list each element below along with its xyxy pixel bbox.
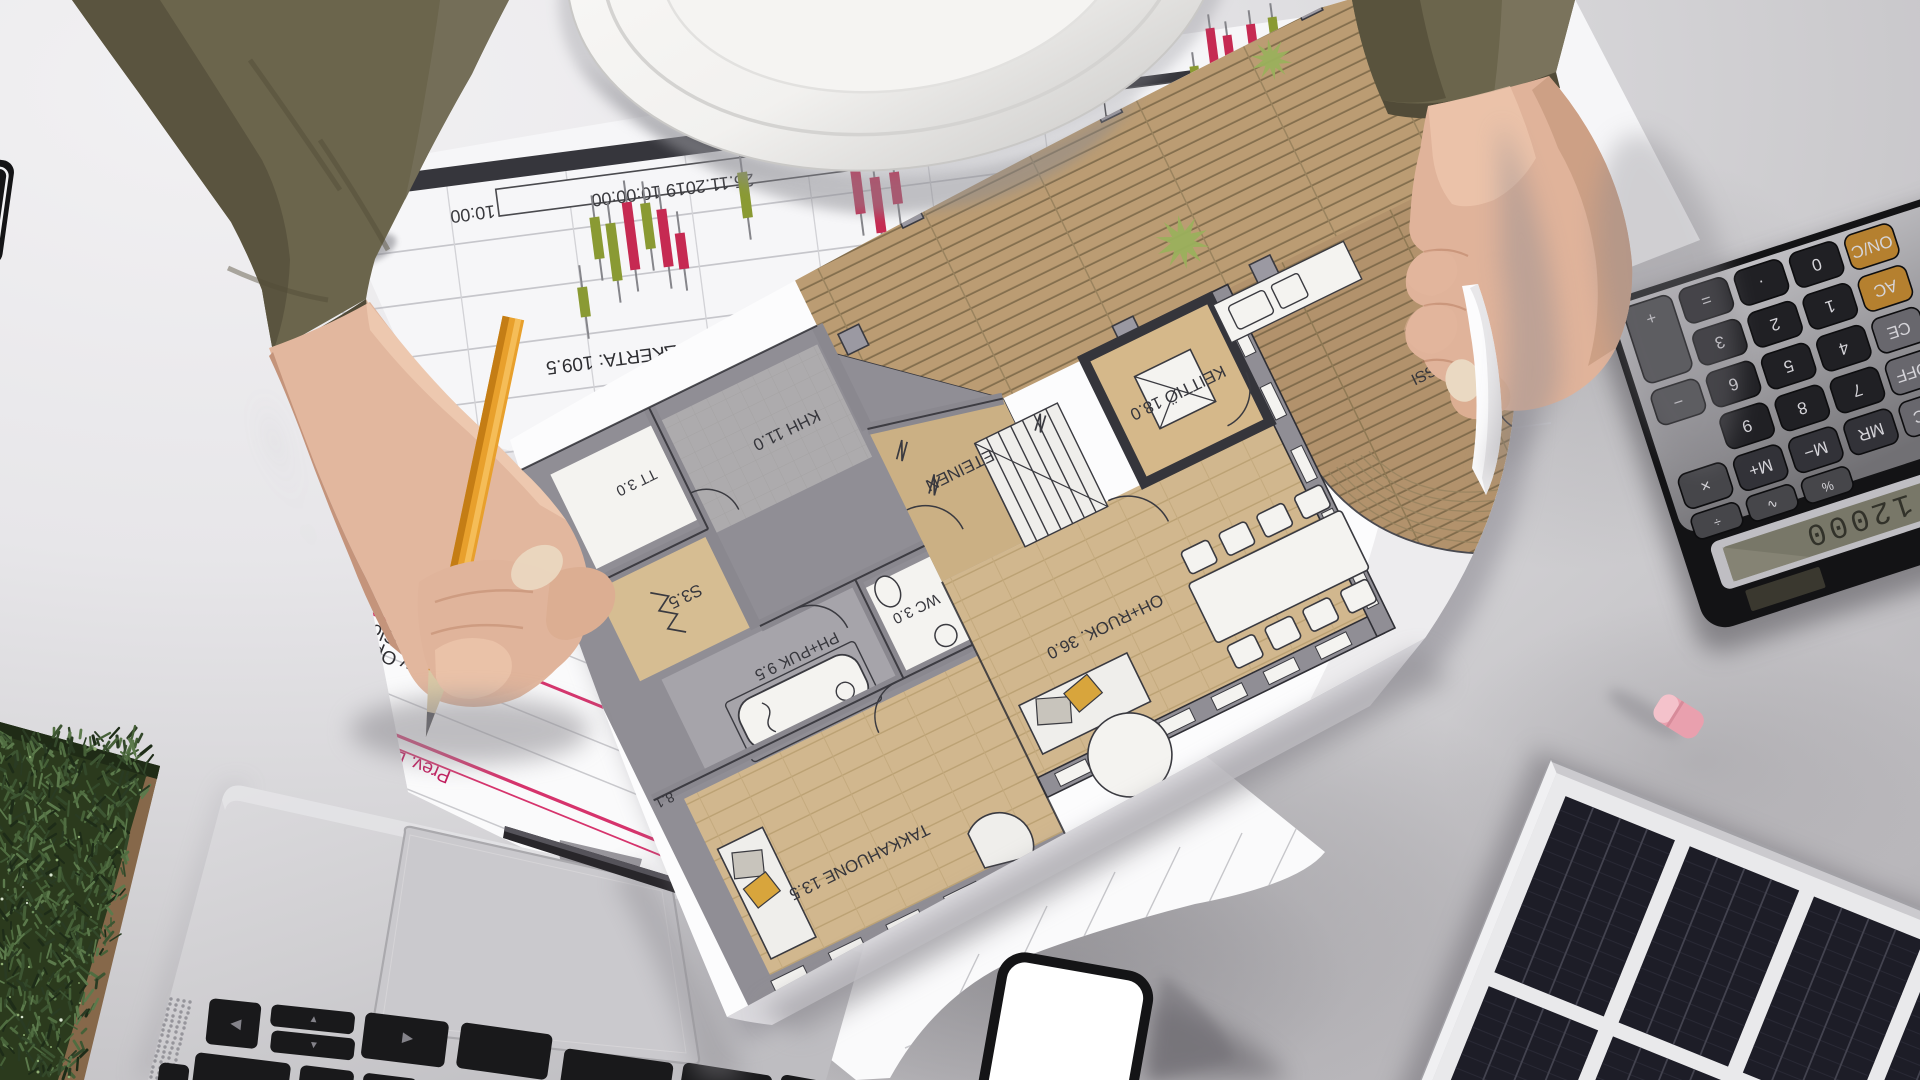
svg-text:▼: ▼ (308, 1039, 319, 1051)
svg-text:▲: ▲ (308, 1013, 319, 1025)
svg-text:◀: ◀ (230, 1014, 243, 1031)
svg-text:▶: ▶ (402, 1028, 415, 1045)
